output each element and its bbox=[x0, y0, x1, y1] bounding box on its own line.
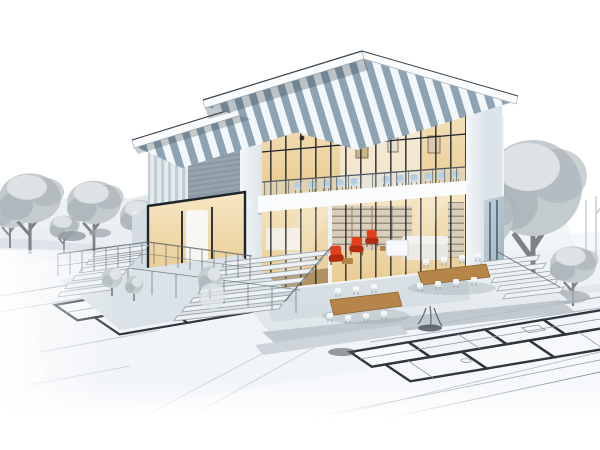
corner-column bbox=[466, 96, 484, 272]
curtain bbox=[186, 210, 208, 262]
top-fade bbox=[0, 0, 600, 46]
right-glass bbox=[484, 196, 504, 266]
bottom-fade bbox=[0, 380, 600, 450]
roadside-bush bbox=[58, 231, 86, 241]
side-table bbox=[344, 258, 353, 264]
architectural-rendering: Architectural concept rendering of a mod… bbox=[0, 0, 600, 450]
shrub-ball bbox=[199, 283, 225, 309]
outdoor-cabinet bbox=[386, 240, 408, 256]
roadside-bush bbox=[89, 229, 111, 238]
